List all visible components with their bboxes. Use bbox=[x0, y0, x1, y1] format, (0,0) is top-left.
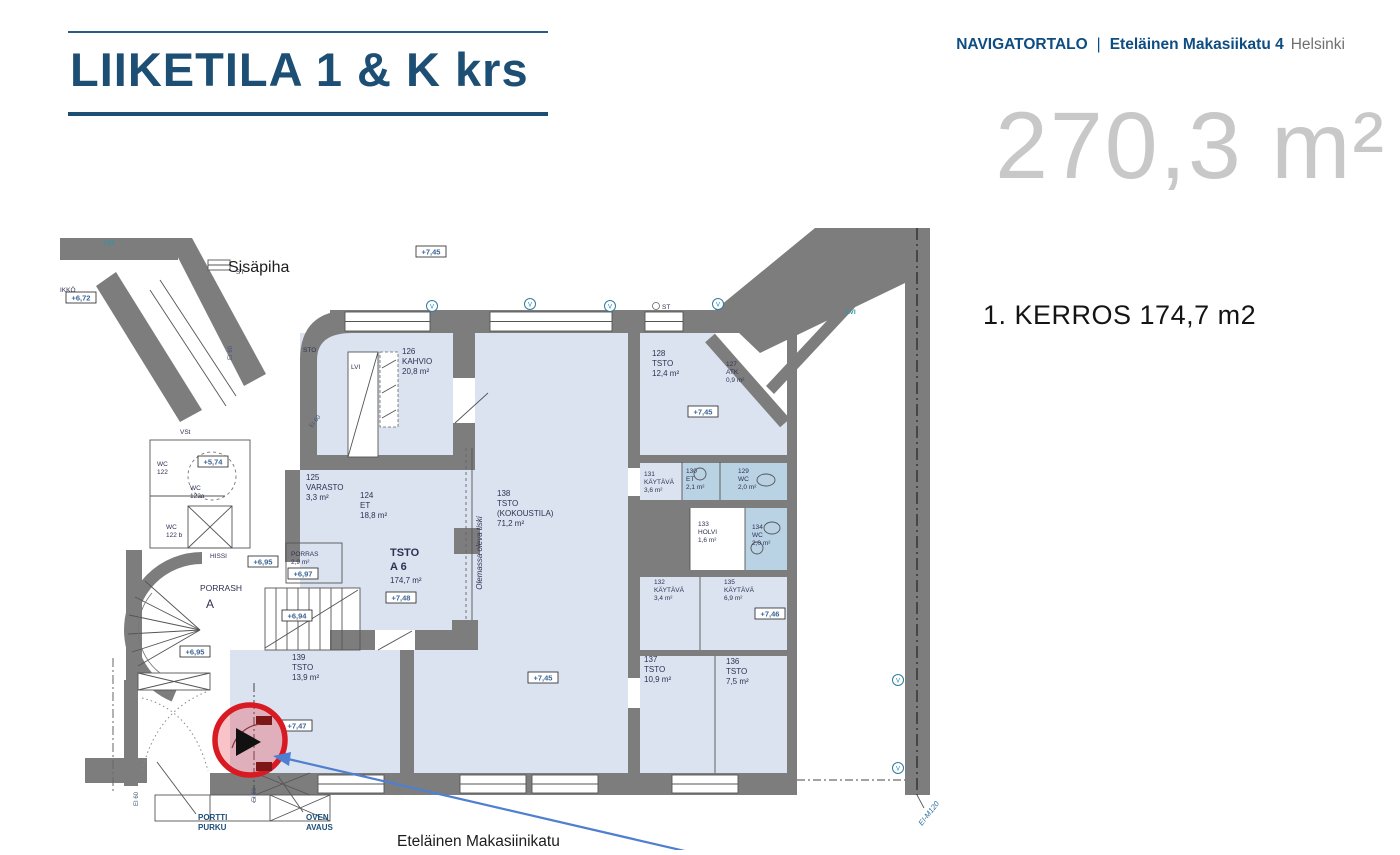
svg-text:+6,97: +6,97 bbox=[294, 570, 313, 579]
room-label-124-name: ET bbox=[360, 501, 370, 510]
building-city: Helsinki bbox=[1291, 36, 1345, 53]
room-label-133-area: 1,6 m² bbox=[698, 537, 717, 544]
oven-label-1: OVEN bbox=[306, 813, 329, 822]
ei60-tag-4: EI 60 bbox=[252, 787, 258, 802]
room-label-132-name: KÄYTÄVÄ bbox=[654, 586, 685, 594]
room-label-porras-area: 2,9 m² bbox=[291, 559, 310, 566]
room-label-127-area: 0,9 m² bbox=[726, 377, 745, 384]
room-label-135-area: 6,9 m² bbox=[724, 595, 743, 602]
ei60-tag-1: EI 60 bbox=[228, 345, 234, 360]
room-label-134-name: WC bbox=[752, 532, 763, 539]
sto-label: STO bbox=[303, 347, 316, 354]
room-label-139-area: 13,9 m² bbox=[292, 673, 319, 682]
lvi-notch-label: LVI bbox=[846, 309, 856, 316]
room-label-137-name: TSTO bbox=[644, 665, 665, 674]
room-label-139-name: TSTO bbox=[292, 663, 313, 672]
wc122-num: 122 bbox=[157, 469, 168, 476]
lvi-topleft-label: LVI bbox=[104, 240, 114, 247]
portti-label-1: PORTTI bbox=[198, 813, 227, 822]
level-marker: +6,95 bbox=[180, 646, 210, 657]
level-marker: +7,45 bbox=[416, 246, 446, 257]
room-label-138-name: TSTO bbox=[497, 499, 518, 508]
room-label-124: 124 bbox=[360, 491, 374, 500]
ei60-tag-3: EI 60 bbox=[134, 791, 140, 806]
svg-text:+7,45: +7,45 bbox=[534, 674, 553, 683]
floor-plan: V V V V V V 126 KAHVIO 20,8 m² 128 TSTO … bbox=[60, 228, 940, 850]
room-label-137-area: 10,9 m² bbox=[644, 675, 671, 684]
level-marker: +6,94 bbox=[282, 610, 312, 621]
floor-plan-svg: V V V V V V 126 KAHVIO 20,8 m² 128 TSTO … bbox=[60, 228, 940, 850]
title-rule-top bbox=[68, 31, 548, 33]
room-label-135: 135 bbox=[724, 579, 735, 586]
room-label-128: 128 bbox=[652, 349, 666, 358]
wc122-label: WC bbox=[157, 461, 168, 468]
st-label: ST bbox=[236, 269, 244, 276]
building-header: NAVIGATORTALO|Eteläinen Makasiikatu 4Hel… bbox=[956, 36, 1345, 54]
counter-label: Olemassa oleva tiski bbox=[475, 516, 484, 590]
room-label-138-area: 71,2 m² bbox=[497, 519, 524, 528]
svg-text:+7,48: +7,48 bbox=[392, 594, 411, 603]
svg-text:+7,46: +7,46 bbox=[761, 610, 780, 619]
room-label-135-name: KÄYTÄVÄ bbox=[724, 586, 755, 594]
vent-marker-label: V bbox=[430, 305, 434, 311]
building-name: NAVIGATORTALO bbox=[956, 36, 1087, 53]
svg-text:+6,95: +6,95 bbox=[254, 558, 273, 567]
hissi-label: HISSI bbox=[210, 553, 227, 560]
eim120-tag: EI-M120 bbox=[916, 799, 940, 828]
room-label-138-name2: (KOKOUSTILA) bbox=[497, 509, 554, 518]
level-marker: +7,47 bbox=[282, 720, 312, 731]
room-label-129-name: WC bbox=[738, 476, 749, 483]
room-label-129: 129 bbox=[738, 468, 749, 475]
level-marker: +7,46 bbox=[755, 608, 785, 619]
header-separator: | bbox=[1097, 36, 1101, 53]
room-label-138: 138 bbox=[497, 489, 511, 498]
porrash-label: PORRASH bbox=[200, 583, 242, 593]
room-label-127: 127 bbox=[726, 361, 737, 368]
room-label-126-area: 20,8 m² bbox=[402, 367, 429, 376]
lvi-shaft-label: LVI bbox=[351, 364, 360, 371]
level-marker: +7,45 bbox=[688, 406, 718, 417]
entrance-highlight bbox=[215, 705, 285, 775]
building-address: Eteläinen Makasiikatu 4 bbox=[1110, 36, 1284, 53]
level-marker: +5,74 bbox=[198, 456, 228, 467]
room-label-134-area: 2,0 m² bbox=[752, 540, 771, 547]
room-label-130-name: ET bbox=[686, 476, 694, 483]
vent-marker-label: V bbox=[896, 767, 900, 773]
room-label-131-area: 3,6 m² bbox=[644, 487, 663, 494]
room-label-131-name: KÄYTÄVÄ bbox=[644, 478, 675, 486]
svg-text:+6,95: +6,95 bbox=[186, 648, 205, 657]
st-label-2: ST bbox=[662, 304, 670, 311]
svg-text:+6,72: +6,72 bbox=[72, 294, 91, 303]
street-label: Eteläinen Makasiinikatu bbox=[397, 833, 560, 850]
level-marker: +7,48 bbox=[386, 592, 416, 603]
wc122a-num: 122a bbox=[190, 493, 205, 500]
oven-label-2: AVAUS bbox=[306, 823, 333, 832]
svg-text:+7,45: +7,45 bbox=[694, 408, 713, 417]
floor-heading: 1. KERROS 174,7 m2 bbox=[983, 300, 1256, 331]
room-label-129-area: 2,0 m² bbox=[738, 484, 757, 491]
room-label-a6-name: A 6 bbox=[390, 561, 407, 573]
room-label-125: 125 bbox=[306, 473, 320, 482]
room-label-128-area: 12,4 m² bbox=[652, 369, 679, 378]
room-label-a6: TSTO bbox=[390, 547, 420, 559]
room-label-130-area: 2,1 m² bbox=[686, 484, 705, 491]
level-marker: +7,45 bbox=[528, 672, 558, 683]
svg-text:+7,45: +7,45 bbox=[422, 248, 441, 257]
level-marker: +6,97 bbox=[288, 568, 318, 579]
svg-text:+6,94: +6,94 bbox=[288, 612, 308, 621]
room-label-136-area: 7,5 m² bbox=[726, 677, 749, 686]
room-label-125-area: 3,3 m² bbox=[306, 493, 329, 502]
vst-label: VSt bbox=[180, 429, 191, 436]
room-label-134: 134 bbox=[752, 524, 763, 531]
svg-text:+5,74: +5,74 bbox=[204, 458, 224, 467]
room-label-131: 131 bbox=[644, 471, 655, 478]
room-label-porras: PORRAS bbox=[291, 551, 319, 558]
room-label-126-name: KAHVIO bbox=[402, 357, 432, 366]
room-label-137: 137 bbox=[644, 655, 658, 664]
vent-marker-label: V bbox=[716, 303, 720, 309]
room-label-125-name: VARASTO bbox=[306, 483, 344, 492]
level-marker: +6,72 bbox=[66, 292, 96, 303]
room-label-124-area: 18,8 m² bbox=[360, 511, 387, 520]
vent-marker-label: V bbox=[896, 679, 900, 685]
wc122b-num: 122 b bbox=[166, 532, 183, 539]
room-label-132-area: 3,4 m² bbox=[654, 595, 673, 602]
room-label-127-name: ATK bbox=[726, 369, 739, 376]
room-label-139: 139 bbox=[292, 653, 306, 662]
room-label-136-name: TSTO bbox=[726, 667, 747, 676]
porrash-letter: A bbox=[206, 597, 214, 611]
wc122b-label: WC bbox=[166, 524, 177, 531]
svg-text:+7,47: +7,47 bbox=[288, 722, 307, 731]
room-label-a6-area: 174,7 m² bbox=[390, 576, 422, 585]
room-label-132: 132 bbox=[654, 579, 665, 586]
page-title: LIIKETILA 1 & K krs bbox=[70, 42, 529, 97]
level-marker: +6,95 bbox=[248, 556, 278, 567]
room-label-136: 136 bbox=[726, 657, 740, 666]
room-label-130: 130 bbox=[686, 468, 697, 475]
room-label-128-name: TSTO bbox=[652, 359, 673, 368]
title-rule-bottom bbox=[68, 112, 548, 116]
vent-marker-label: V bbox=[608, 305, 612, 311]
portti-label-2: PURKU bbox=[198, 823, 227, 832]
room-label-126: 126 bbox=[402, 347, 416, 356]
total-area-value: 270,3 m² bbox=[995, 92, 1386, 201]
room-label-133: 133 bbox=[698, 521, 709, 528]
vent-marker-label: V bbox=[528, 303, 532, 309]
room-label-133-name: HOLVI bbox=[698, 529, 717, 536]
wc122a-label: WC bbox=[190, 485, 201, 492]
